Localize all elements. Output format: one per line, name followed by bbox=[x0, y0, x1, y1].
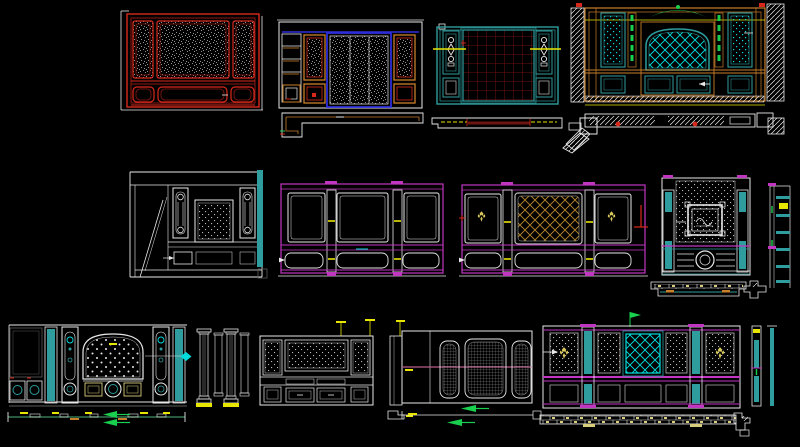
block-classical-columns[interactable] bbox=[196, 329, 249, 407]
block-cyan-trellis-wall[interactable] bbox=[540, 312, 777, 436]
block-grid-panel-wall[interactable] bbox=[402, 331, 541, 426]
block-dotted-mirror-wall[interactable] bbox=[651, 175, 790, 298]
block-ornate-arch-tv-wall[interactable] bbox=[566, 3, 784, 150]
block-blue-curtain-wall[interactable] bbox=[277, 20, 424, 137]
block-magenta-frame-wall[interactable] bbox=[278, 181, 446, 276]
block-arched-tufted-wall[interactable] bbox=[8, 325, 192, 426]
block-red-carved-panel[interactable] bbox=[121, 11, 263, 110]
orn-fleur bbox=[608, 211, 616, 222]
drawing-blocks-layer bbox=[8, 3, 790, 436]
block-white-pilaster-wall[interactable] bbox=[130, 170, 267, 278]
cad-model-space-viewport[interactable] bbox=[0, 0, 800, 447]
block-gold-trellis-wall[interactable] bbox=[459, 182, 648, 276]
cad-canvas[interactable] bbox=[0, 0, 800, 447]
block-dotted-cabinet[interactable] bbox=[260, 319, 413, 419]
orn-fleur bbox=[478, 211, 486, 222]
